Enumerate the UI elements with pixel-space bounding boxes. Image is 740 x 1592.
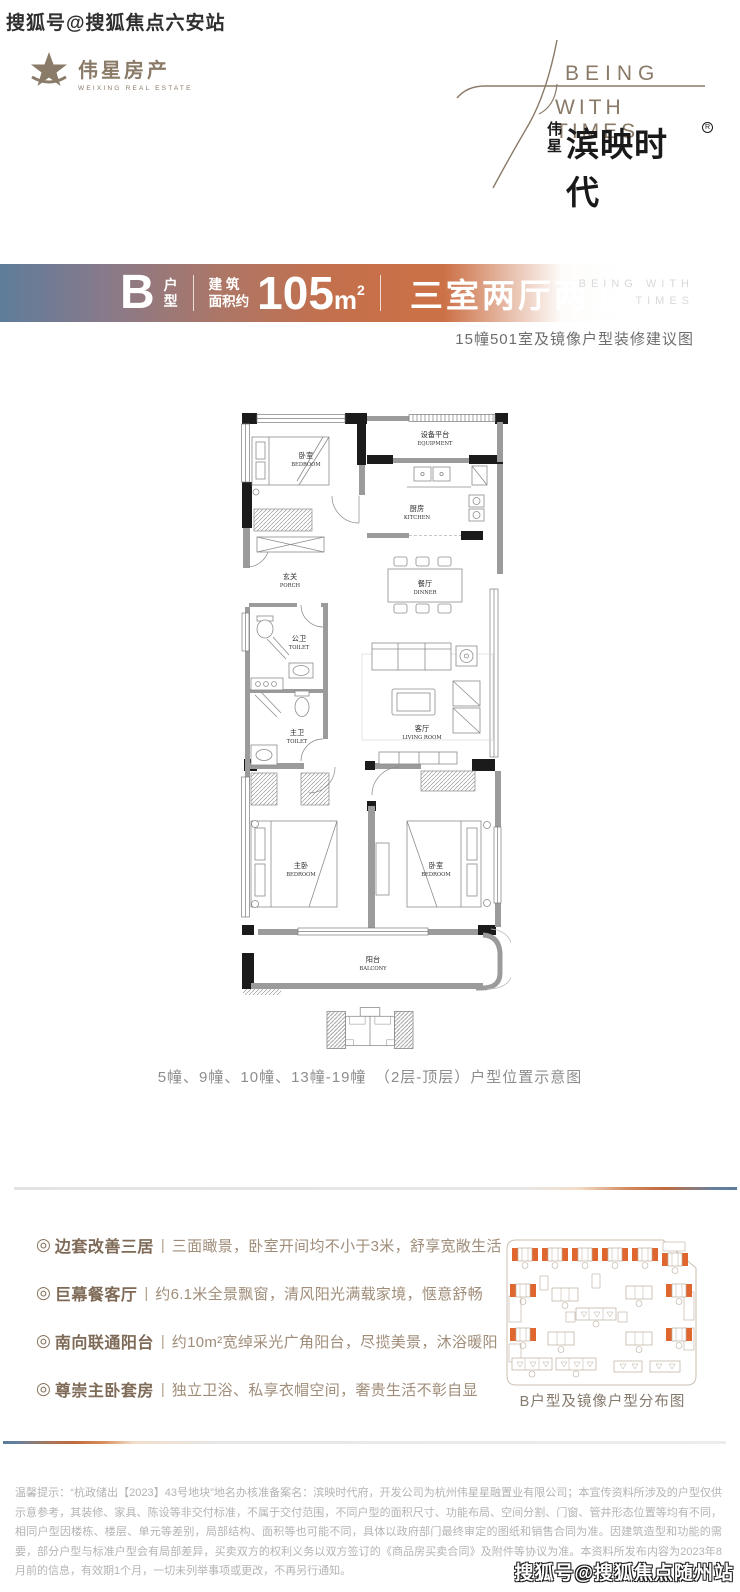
poster-page: 搜狐号@搜狐焦点六安站 伟星房产 WEIXING REAL ESTATE BEI… [0, 0, 740, 1592]
floor-plan: 卧室 BEDROOM 设备平台 EQUIPMENT 厨房 KITCHEN 玄关 … [239, 397, 511, 1002]
area-label: 建 筑 面积约 [209, 276, 250, 310]
room-label: LIVING ROOM [402, 735, 442, 741]
room-label: 厨房 [410, 504, 424, 513]
siteplan-buildings [509, 1242, 694, 1377]
banner-watermark: BEING WITH TIMES [579, 276, 694, 310]
site-plan-caption: B户型及镜像户型分布图 [500, 1390, 705, 1411]
room-label: 餐厅 [418, 579, 432, 588]
brand-cn-vertical: 伟 星 [547, 121, 562, 155]
unit-position-caption: 5幢、9幢、10幢、13幢-19幢 （2层-顶层）户型位置示意图 [0, 1066, 740, 1087]
feature-row: ◎ 边套改善三居 | 三面瞰景，卧室开间均不小于3米，舒享宽敞生活 [36, 1234, 502, 1256]
room-label: 设备平台 [421, 430, 450, 439]
room-label: TOILET [287, 739, 308, 745]
developer-name-en: WEIXING REAL ESTATE [78, 85, 193, 92]
unit-letter: B [120, 269, 155, 317]
room-label: 客厅 [415, 724, 429, 733]
unit-type-label: 户 型 [164, 277, 178, 309]
bullet-icon: ◎ [36, 1235, 51, 1255]
room-label: 卧室 [429, 861, 443, 870]
project-brand-lockup: BEING WITH TIMES 伟 星 滨映时代 R [443, 26, 713, 208]
room-label: 卧室 [299, 451, 313, 460]
decor-suggestion-note: 15幢501室及镜像户型装修建议图 [455, 328, 694, 349]
room-label: 主卫 [290, 728, 304, 737]
unit-type-banner: B 户 型 建 筑 面积约 105 m 2 三室两厅两卫 BEING WITH … [0, 264, 740, 322]
feature-row: ◎ 巨幕餐客厅 | 约6.1米全景飘窗，清风阳光满载家境，惬意舒畅 [36, 1282, 502, 1304]
brand-name-cn: 伟 星 滨映时代 R [547, 118, 713, 214]
room-label: KITCHEN [404, 515, 431, 521]
developer-name-cn: 伟星房产 [78, 54, 193, 83]
room-label: PORCH [280, 583, 301, 589]
feature-row: ◎ 南向联通阳台 | 约10m²宽绰采光广角阳台，尽揽美景，沐浴暖阳 [36, 1330, 502, 1352]
sohu-watermark-bottom: 搜狐号@搜狐焦点随州站 [514, 1558, 734, 1585]
star-logo-icon [28, 50, 70, 95]
banner-divider [193, 275, 194, 311]
room-label: TOILET [289, 645, 310, 651]
section-divider-top [14, 1187, 737, 1190]
feature-row: ◎ 尊崇主卧套房 | 独立卫浴、私享衣帽空间，奢贵生活不彰自显 [36, 1378, 502, 1400]
brand-cn-main: 滨映时代 [566, 118, 700, 214]
bullet-icon: ◎ [36, 1379, 51, 1399]
room-label: 阳台 [366, 955, 380, 964]
room-label: 主卧 [294, 861, 308, 870]
room-label: 玄关 [283, 572, 297, 581]
banner-divider [380, 275, 381, 311]
bullet-icon: ◎ [36, 1331, 51, 1351]
room-label: BEDROOM [286, 872, 316, 878]
bullet-icon: ◎ [36, 1283, 51, 1303]
balcony-corner [476, 929, 511, 989]
developer-logo: 伟星房产 WEIXING REAL ESTATE [28, 50, 193, 95]
developer-logo-text: 伟星房产 WEIXING REAL ESTATE [78, 54, 193, 92]
room-label: EQUIPMENT [417, 441, 453, 447]
site-plan [500, 1232, 705, 1395]
section-divider-bottom [3, 1441, 726, 1444]
room-label: 公卫 [292, 634, 306, 643]
brand-line-being: BEING [565, 62, 660, 86]
room-label: BALCONY [359, 966, 387, 972]
registered-mark: R [702, 122, 713, 133]
room-label: BEDROOM [291, 462, 321, 468]
room-label: BEDROOM [421, 872, 451, 878]
feature-list: ◎ 边套改善三居 | 三面瞰景，卧室开间均不小于3米，舒享宽敞生活 ◎ 巨幕餐客… [36, 1234, 502, 1426]
unit-position-icon [326, 1004, 414, 1061]
room-label: DINNER [414, 590, 438, 596]
area-value: 105 m 2 [257, 270, 365, 316]
sohu-watermark-top: 搜狐号@搜狐焦点六安站 [6, 8, 226, 35]
